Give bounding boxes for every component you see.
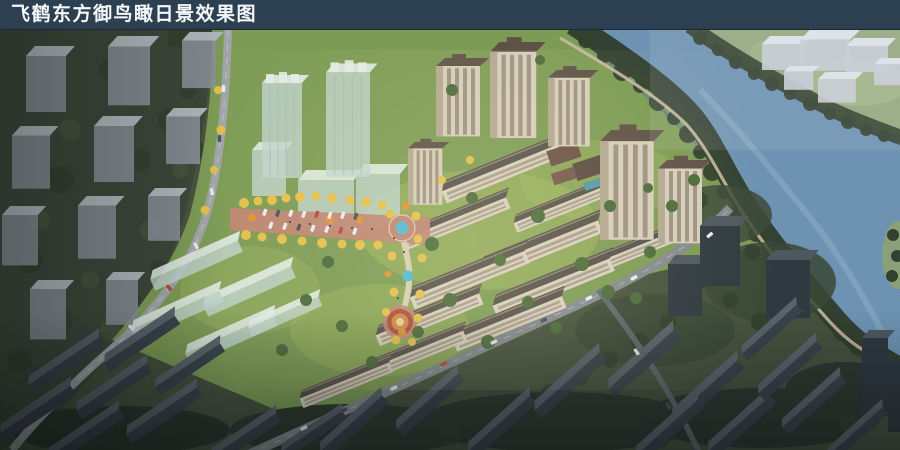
- title-bar: 飞鹤东方御鸟瞰日景效果图: [0, 0, 900, 30]
- rendering-image: [0, 30, 900, 450]
- page-title: 飞鹤东方御鸟瞰日景效果图: [11, 5, 257, 24]
- vignette-left: [0, 30, 230, 450]
- aerial-scene: [0, 30, 900, 450]
- screenshot-root: 飞鹤东方御鸟瞰日景效果图: [0, 0, 900, 450]
- haze-top-right: [650, 30, 900, 150]
